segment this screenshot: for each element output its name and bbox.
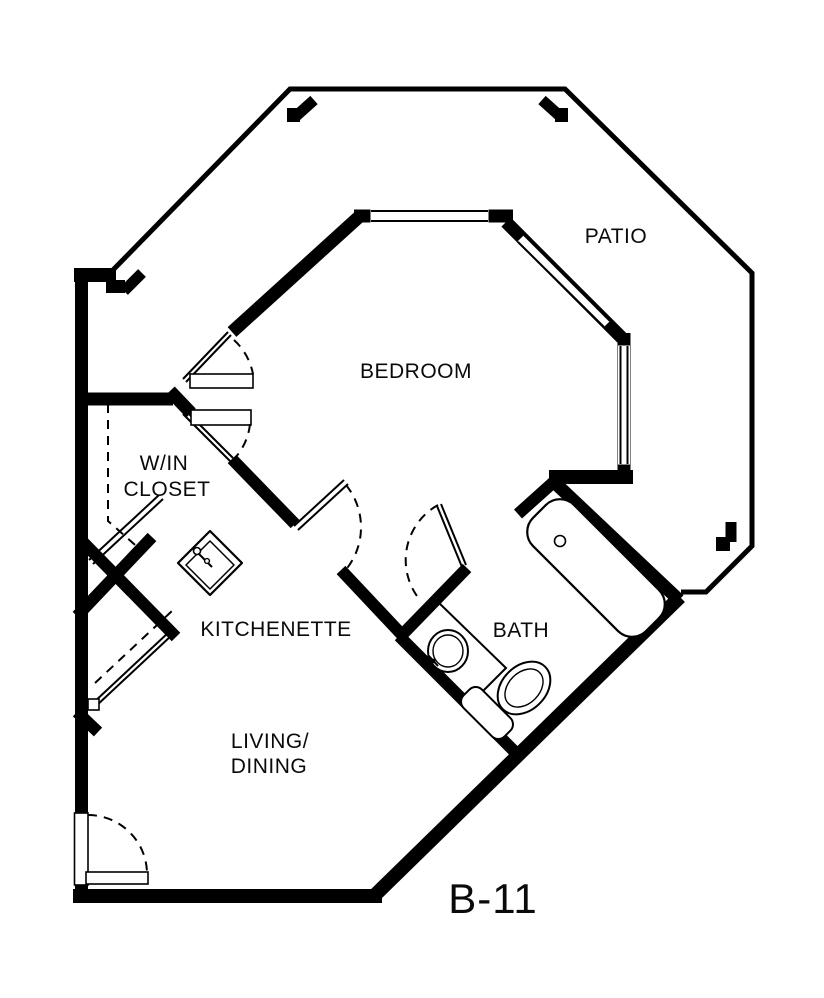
door-swing-arc [406, 505, 438, 600]
living-label-line2: DINING [231, 755, 308, 778]
bath-nw-wall-a [400, 568, 467, 637]
doors-and-details [75, 332, 467, 885]
closet-label-line1: W/IN [140, 452, 189, 475]
bedroom-nw-wall [232, 215, 361, 332]
bedroom-ne-window [518, 235, 610, 327]
closet-label-line2: CLOSET [123, 478, 210, 501]
patio-label: PATIO [585, 225, 647, 248]
door-swing-arc [88, 815, 147, 873]
hall-bifold-door [88, 632, 172, 710]
patio-column-icon [716, 522, 731, 551]
bath-sink-icon [428, 630, 468, 672]
kitchenette-label: KITCHENETTE [200, 618, 351, 641]
door-leaf [190, 374, 253, 388]
floor-plan-page: PATIO BEDROOM W/IN CLOSET KITCHENETTE BA… [0, 0, 824, 998]
bedroom-hall-door [294, 480, 361, 573]
bedroom-top-window [371, 210, 488, 223]
door-leaf [191, 410, 251, 425]
kitchen-sink-icon [178, 531, 242, 595]
bedroom-label: BEDROOM [360, 360, 472, 383]
unit-title: B-11 [448, 875, 538, 922]
bedroom-double-door [183, 332, 253, 461]
patio-column-icon [287, 100, 314, 122]
living-label-line1: LIVING/ [231, 730, 309, 753]
door-swing-arc [343, 485, 361, 573]
door-leaf [86, 872, 148, 884]
floor-plan-drawing: PATIO BEDROOM W/IN CLOSET KITCHENETTE BA… [0, 0, 824, 998]
patio-boundary [106, 89, 752, 592]
patio-column-icon [542, 100, 568, 122]
entry-door [75, 813, 149, 885]
bath-label: BATH [493, 619, 549, 642]
patio-railing [112, 89, 752, 592]
closet-bedroom-wall [232, 459, 295, 524]
door-swing-arc [234, 340, 253, 374]
door-swing-arc [234, 424, 250, 459]
hall-wall-hub [170, 391, 191, 413]
bedroom-east-window [619, 346, 630, 464]
outer-diagonal-wall [373, 597, 680, 897]
